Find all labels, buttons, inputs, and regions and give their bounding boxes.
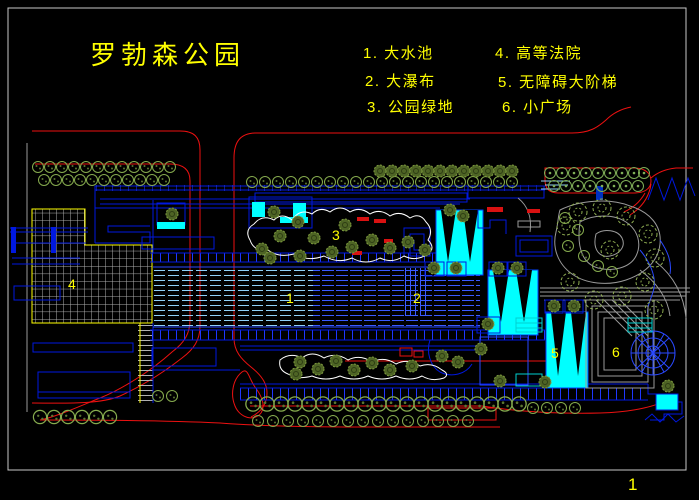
page-number: 1 [628,475,637,494]
legend: 1. 大水池 2. 大瀑布 3. 公园绿地 4. 高等法院 5. 无障碍大阶梯 … [363,44,618,116]
legend-item-4: 4. 高等法院 [495,44,582,62]
legend-item-2: 2. 大瀑布 [365,73,436,90]
drawing-title: 罗勃森公园 [90,40,245,70]
planter-water [157,222,185,229]
east-water-feature [656,394,678,410]
planter-curve [428,340,472,375]
marker-waterfall: 2 [413,290,421,306]
center-structures [478,198,552,256]
round-plaza-wheel [631,331,675,375]
legend-item-1: 1. 大水池 [363,45,434,62]
steps-zigzag [648,178,695,200]
marker-courthouse: 4 [68,276,76,292]
marker-pool: 1 [286,290,294,306]
cascade-2 [488,270,538,335]
southwest-structures [33,343,240,398]
legend-item-5: 5. 无障碍大阶梯 [498,73,618,91]
park-plan-drawing: 罗勃森公园 1. 大水池 2. 大瀑布 3. 公园绿地 4. 高等法院 5. 无… [0,0,699,500]
red-marker [527,209,540,213]
red-marker [487,207,503,212]
legend-item-6: 6. 小广场 [502,99,573,116]
legend-item-3: 3. 公园绿地 [367,99,454,116]
marker-greenspace: 3 [332,227,340,243]
marker-grand-steps: 5 [551,345,559,361]
marker-plaza: 6 [612,344,620,360]
meander-walk [95,203,214,249]
bench [518,221,540,227]
courthouse-building [32,209,153,403]
cad-viewport: 罗勃森公园 1. 大水池 2. 大瀑布 3. 公园绿地 4. 高等法院 5. 无… [0,0,699,500]
